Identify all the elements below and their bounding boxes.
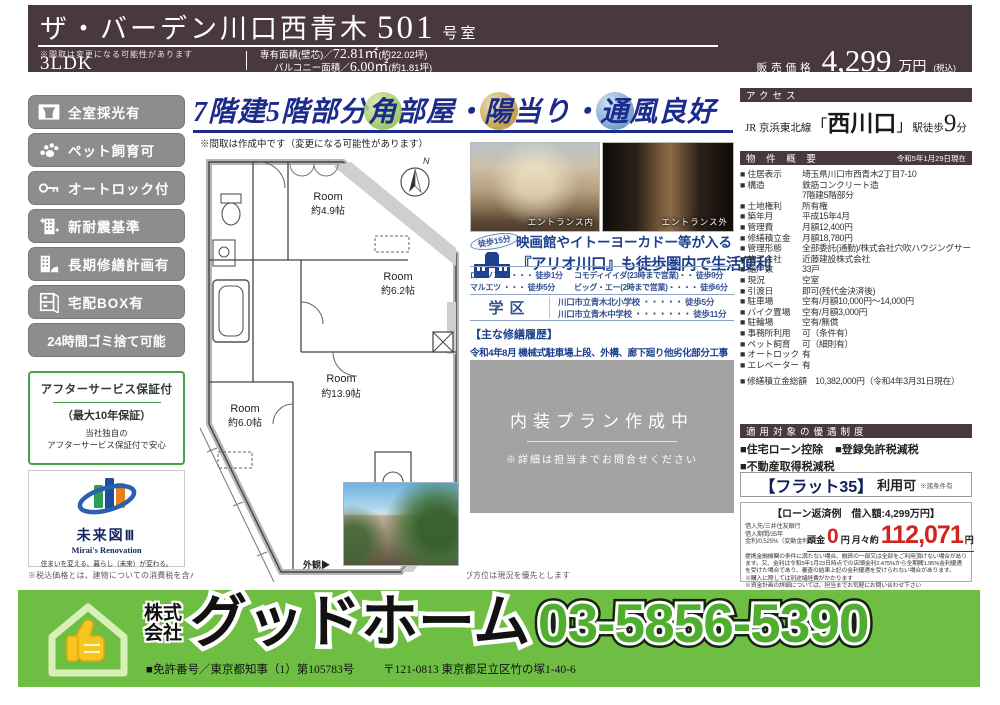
loan-note: ※資金計画の詳細については、担当までお気軽にお問い合わせ下さい (745, 583, 967, 590)
loan-conditions: 借入先/三井住友銀行借入期間/35年金利/0.525%（変動金利） (745, 521, 807, 552)
loan-amounts: 頭金 0 円 月々約 112,071 円 (807, 521, 974, 552)
loan-condition: 借入先/三井住友銀行 (745, 523, 807, 531)
table-row: ■ 現況 空室 (740, 275, 972, 286)
price-value: 4,299 (822, 43, 892, 79)
table-row: ■ 事務所利用 可（条件有） (740, 328, 972, 339)
svg-text:約13.9帖: 約13.9帖 (321, 387, 360, 400)
table-row: ■ 修繕積立金 月額18,780円 (740, 233, 972, 244)
after-service-text: 当社独自の アフターサービス保証付で安心 (30, 427, 183, 451)
loan-notes: ※購入に際しては別途諸経費がかかります※資金計画の詳細については、担当までお気軽… (745, 576, 967, 590)
floor-plan: N Room 約4.9帖 Room 約6.2帖 Room 約13.9帖 Room… (193, 152, 467, 588)
feature-badge-daylight: 全室採光有 (28, 95, 185, 129)
room-suffix: 号室 (443, 26, 479, 42)
room-label: Room (326, 373, 355, 385)
feature-badge-quake: 新耐震基準 (28, 209, 185, 243)
header-divider (246, 51, 247, 70)
repair-history: 【主な修繕履歴】 令和4年8月 機械式駐車場上段、外構、廊下廻り他劣化部分工事 (470, 326, 734, 359)
exterior-photo (343, 482, 459, 566)
table-row: ■ 駐車場 空有/月額10,000円～14,000円 (740, 296, 972, 307)
company-name: グッドホーム (190, 590, 530, 654)
after-service-divider (53, 402, 161, 403)
quake-building-icon (38, 215, 60, 237)
entrance-exterior-photo: エントランス外 (602, 142, 734, 232)
overview-section-header: 物 件 概 要 令和5年1月29日現在 (740, 151, 972, 165)
privilege-item: ■登録免許税減税 (835, 443, 919, 458)
monthly-payment-value: 112,071 (881, 521, 963, 550)
office-address: 〒121-0813 東京都足立区竹の塚1-40-6 (383, 664, 576, 676)
header-band: ザ・バーデン川口西青木 501 号室 ※間取は変更になる可能性があります 3LD… (28, 5, 972, 72)
table-row: ■ 管理形態 全部委託(通勤)/株式会社穴吹ハウジングサービス (740, 243, 972, 254)
table-row: ■ 住居表示 埼玉県川口市西青木2丁目7-10 (740, 169, 972, 180)
table-row: ■ 引渡日 即可(残代金決済後) (740, 286, 972, 297)
after-service-box: アフターサービス保証付 （最大10年保証） 当社独自の アフターサービス保証付で… (28, 371, 185, 465)
table-row: ■ 総戸数 33戸 (740, 264, 972, 275)
walk-time-badge: 徒歩15分 (469, 230, 520, 253)
compass-icon: N (401, 156, 430, 196)
table-row: ■ オートロック 有 (740, 349, 972, 360)
interior-plan-divider (527, 441, 677, 442)
flat35-note: ※諸条件有 (920, 480, 953, 490)
feature-badge-delivery-box: 宅配BOX有 (28, 285, 185, 319)
headline-note: ※間取は作成中です（変更になる可能性があります） (200, 136, 428, 150)
table-row: ■ 構造 鉄筋コンクリート造 (740, 180, 972, 191)
loan-fine-print: 提携金融機関の条件に満たない場合、融資の一部又は全部をご利用頂けない場合がありま… (745, 554, 967, 575)
paw-icon (38, 139, 60, 161)
mirai-title: 未来図Ⅲ (29, 525, 184, 545)
station-access: JR 京浜東北線 「 西川口 」 駅徒歩 9 分 (740, 104, 972, 138)
after-service-title: アフターサービス保証付 (30, 381, 183, 397)
nearby-stores-list: ローソン ・・・・ 徒歩1分マルエツ ・・・ 徒歩5分コモディイイダ(23時まで… (470, 266, 734, 294)
after-service-subtitle: （最大10年保証） (30, 407, 183, 423)
school-item: 川口市立青木中学校 ・・・・・・・ 徒歩11分 (558, 308, 726, 320)
privilege-item: ■住宅ローン控除 (740, 443, 823, 458)
table-row: ■ 築年月 平成15年4月 (740, 211, 972, 222)
feature-badge-repair-plan: 長期修繕計画有 (28, 247, 185, 281)
exclusive-area: 専有面積(壁芯)／72.81㎡(約22.02坪) (260, 49, 432, 62)
interior-plan-note: ※詳細は担当までお問合せください (506, 451, 698, 466)
exterior-photo-label: 外観▶ (303, 558, 330, 571)
entrance-interior-photo: エントランス内 (470, 142, 600, 232)
room-label: Room (313, 191, 342, 203)
svg-text:N: N (423, 156, 430, 166)
photo-caption: エントランス内 (528, 216, 594, 228)
area-info: 専有面積(壁芯)／72.81㎡(約22.02坪) バルコニー面積／6.00㎡(約… (260, 49, 432, 74)
privileges-list: ■住宅ローン控除■登録免許税減税■不動産取得税減税 (740, 441, 972, 475)
key-icon (38, 177, 60, 199)
license-and-address: ■免許番号／東京都知事（1）第105783号 〒121-0813 東京都足立区竹… (146, 661, 576, 677)
circle-accent-gold: 陽 (484, 90, 513, 130)
window-icon (38, 101, 60, 123)
room-number: 501 (377, 10, 436, 46)
price-tax-note: (税込) (933, 62, 956, 74)
flat35-box: 【フラット35】 利用可 ※諸条件有 (740, 472, 972, 497)
loan-amounts-row: 借入先/三井住友銀行借入期間/35年金利/0.525%（変動金利） 頭金 0 円… (745, 521, 967, 552)
table-row: ■ エレベーター 有 (740, 360, 972, 371)
page-title: ザ・バーデン川口西青木 501 号室 (40, 7, 479, 47)
svg-text:約6.0帖: 約6.0帖 (228, 416, 262, 429)
delivery-box-icon (38, 291, 60, 313)
school-list: 川口市立青木北小学校 ・・・・・ 徒歩5分川口市立青木中学校 ・・・・・・・ 徒… (550, 296, 726, 320)
walk-minutes: 9 (944, 110, 957, 138)
svg-text:約4.9帖: 約4.9帖 (311, 204, 345, 217)
repair-history-title: 【主な修繕履歴】 (470, 326, 734, 342)
down-payment-value: 0 (827, 525, 839, 549)
table-row: ■ ペット飼育 可（細則有） (740, 339, 972, 350)
loan-title: 【ローン返済例 借入額:4,299万円】 (745, 505, 967, 520)
mirai-renovation-box: 未来図Ⅲ Mirai's Renovation 住まいを変える、暮らし（未来）が… (28, 470, 185, 567)
school-district: 学区 川口市立青木北小学校 ・・・・・ 徒歩5分川口市立青木中学校 ・・・・・・… (470, 294, 734, 321)
room-label: Room (230, 403, 259, 415)
headline-underline (193, 130, 733, 133)
mirai-subtitle: Mirai's Renovation (29, 545, 184, 555)
building-name: ザ・バーデン川口西青木 (40, 14, 370, 44)
store-item: コモディイイダ(23時まで営業)・・ 徒歩9分 (574, 270, 734, 282)
catch-headline: 7階建5階部分角部屋・陽当り・通風良好 (193, 90, 735, 130)
photo-caption: エントランス外 (662, 216, 728, 228)
reserve-fund-total: ■ 修繕積立金総額 10,382,000円（令和4年3月31日現在） (740, 374, 972, 387)
house-thumb-logo-icon (38, 595, 138, 679)
property-overview-table: ■ 住居表示 埼玉県川口市西青木2丁目7-10 ■ 構造 鉄筋コンクリート造 7… (740, 169, 972, 370)
interior-plan-box: 内装プラン作成中 ※詳細は担当までお問合せください (470, 360, 734, 513)
circle-accent-blue: 通 (600, 90, 629, 130)
price-label: 販売価格 (757, 60, 815, 75)
table-row: ■ 駐輪場 空有/無償 (740, 317, 972, 328)
feature-badge-pets: ペット飼育可 (28, 133, 185, 167)
table-row: ■ 土地権利 所有権 (740, 201, 972, 212)
flat35-label: 【フラット35】 (759, 473, 873, 497)
license-number: ■免許番号／東京都知事（1）第105783号 (146, 664, 354, 676)
loan-example-box: 【ローン返済例 借入額:4,299万円】 借入先/三井住友銀行借入期間/35年金… (740, 502, 972, 582)
as-of-date: 令和5年1月29日現在 (897, 153, 966, 164)
table-row: 7階建5階部分 (740, 190, 972, 201)
phone-number: 03-5856-5390 (538, 592, 869, 654)
store-item: マルエツ ・・・ 徒歩5分 (470, 282, 574, 294)
loan-condition: 金利/0.525%（変動金利） (745, 538, 807, 546)
privileges-section-header: 適用対象の優遇制度 (740, 424, 972, 438)
table-row: ■ バイク置場 空有/月額3,000円 (740, 307, 972, 318)
repair-building-icon (38, 253, 60, 275)
station-name: 西川口 (827, 104, 896, 138)
price-unit: 万円 (898, 56, 926, 76)
room-label: Room (383, 271, 412, 283)
footer-band: 株式 会社 グッドホーム 03-5856-5390 ■免許番号／東京都知事（1）… (18, 590, 980, 687)
balcony-area: バルコニー面積／6.00㎡(約1.81坪) (260, 62, 432, 75)
store-item: ローソン ・・・・ 徒歩1分 (470, 270, 574, 282)
layout-type: 3LDK (40, 53, 93, 75)
repair-history-entry: 令和4年8月 機械式駐車場上段、外構、廊下廻り他劣化部分工事 (470, 345, 734, 359)
price-block: 販売価格 4,299 万円 (税込) (757, 43, 956, 79)
access-section-header: アクセス (740, 88, 972, 102)
real-estate-flyer: ザ・バーデン川口西青木 501 号室 ※間取は変更になる可能性があります 3LD… (0, 0, 1000, 705)
mirai-logo-icon (70, 474, 144, 520)
circle-accent-green: 角 (368, 90, 397, 130)
mirai-tagline: 住まいを変える、暮らし（未来）が変わる。 (29, 558, 184, 568)
feature-badge-24h-garbage: 24時間ゴミ捨て可能 (28, 323, 185, 357)
feature-badge-autolock: オートロック付 (28, 171, 185, 205)
svg-text:約6.2帖: 約6.2帖 (381, 284, 415, 297)
store-item: ビッグ・エー(2時まで営業)・・・・ 徒歩6分 (574, 282, 734, 294)
table-row: ■ 施工会社 近藤建設株式会社 (740, 254, 972, 265)
company-prefix: 株式 会社 (144, 604, 182, 644)
school-item: 川口市立青木北小学校 ・・・・・ 徒歩5分 (558, 296, 726, 308)
table-row: ■ 管理費 月額12,400円 (740, 222, 972, 233)
interior-plan-title: 内装プラン作成中 (510, 407, 694, 432)
loan-note: ※購入に際しては別途諸経費がかかります (745, 576, 967, 583)
school-district-label: 学区 (470, 297, 550, 318)
